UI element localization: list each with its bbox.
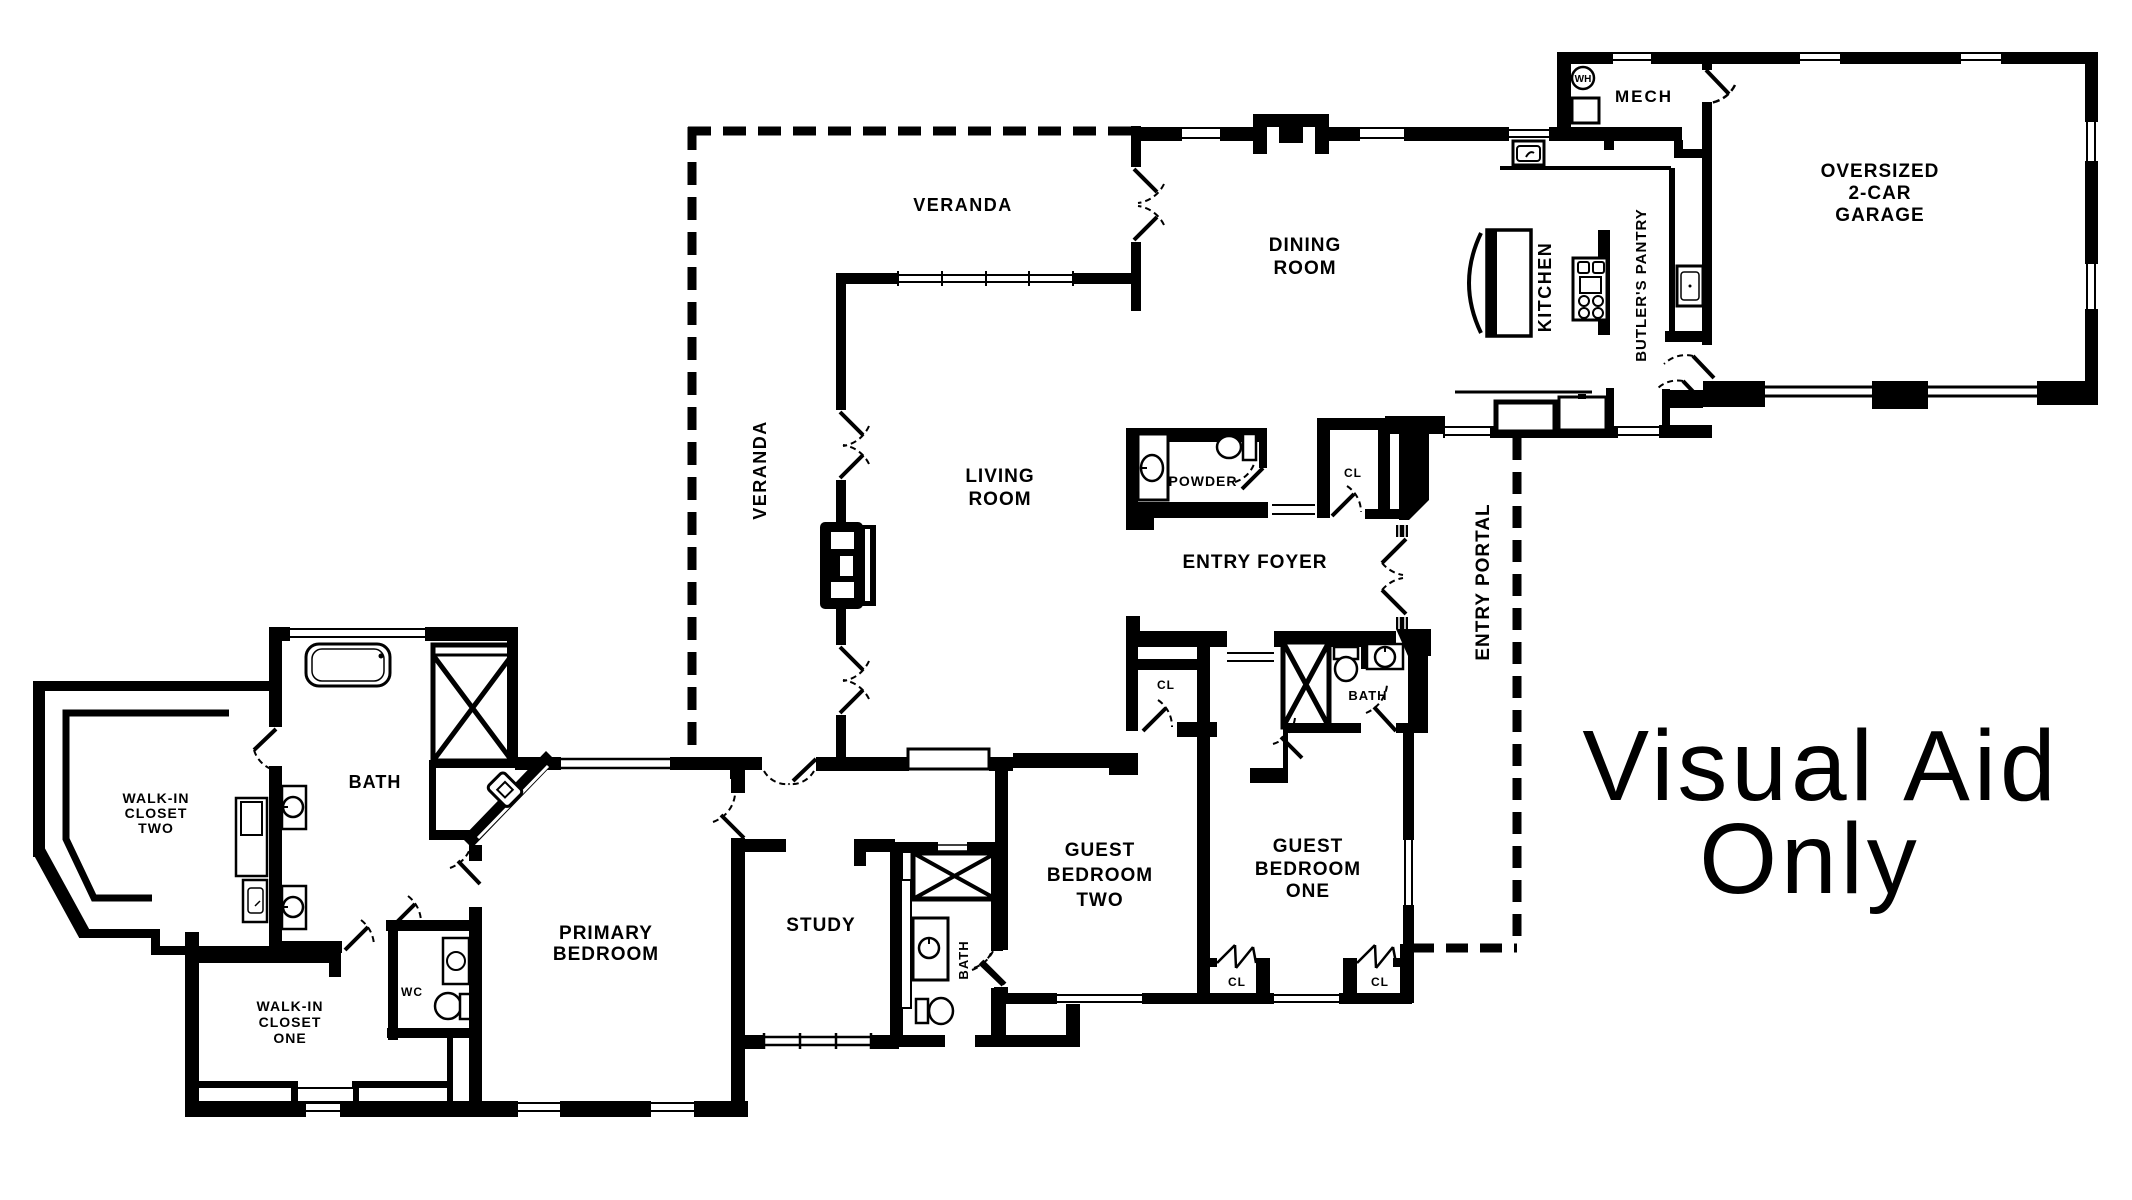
svg-text:BEDROOM: BEDROOM	[1047, 865, 1153, 886]
svg-text:WH: WH	[1575, 74, 1592, 85]
svg-text:ROOM: ROOM	[1273, 258, 1336, 279]
svg-text:STUDY: STUDY	[786, 915, 855, 936]
svg-text:ENTRY PORTAL: ENTRY PORTAL	[1473, 503, 1494, 660]
svg-text:BATH: BATH	[349, 772, 402, 792]
svg-text:2-CAR: 2-CAR	[1848, 183, 1911, 204]
svg-text:TWO: TWO	[1076, 890, 1123, 911]
svg-text:WC: WC	[401, 985, 423, 999]
svg-text:DINING: DINING	[1269, 235, 1342, 256]
svg-text:MECH: MECH	[1615, 87, 1673, 106]
svg-text:WALK-IN: WALK-IN	[123, 790, 190, 806]
svg-text:BEDROOM: BEDROOM	[1255, 859, 1361, 880]
svg-text:GUEST: GUEST	[1065, 840, 1135, 861]
svg-text:LIVING: LIVING	[965, 466, 1034, 487]
svg-text:ONE: ONE	[273, 1030, 306, 1046]
svg-text:ROOM: ROOM	[968, 489, 1031, 510]
svg-text:GUEST: GUEST	[1273, 836, 1343, 857]
svg-text:CL: CL	[1228, 975, 1246, 989]
svg-text:PRIMARY: PRIMARY	[559, 923, 653, 944]
svg-text:WALK-IN: WALK-IN	[257, 998, 324, 1014]
svg-text:CL: CL	[1157, 678, 1175, 692]
svg-text:VERANDA: VERANDA	[750, 420, 770, 520]
svg-text:POWDER: POWDER	[1169, 473, 1238, 489]
svg-text:ONE: ONE	[1286, 881, 1330, 902]
svg-text:CL: CL	[1371, 975, 1389, 989]
svg-text:Only: Only	[1699, 803, 1921, 915]
svg-text:VERANDA: VERANDA	[913, 195, 1013, 215]
svg-text:ENTRY FOYER: ENTRY FOYER	[1182, 552, 1327, 573]
svg-text:BEDROOM: BEDROOM	[553, 944, 659, 965]
svg-text:BATH: BATH	[956, 940, 971, 979]
svg-text:CLOSET: CLOSET	[125, 805, 188, 821]
svg-text:CL: CL	[1344, 466, 1362, 480]
svg-text:OVERSIZED: OVERSIZED	[1821, 161, 1940, 182]
svg-text:BUTLER'S PANTRY: BUTLER'S PANTRY	[1633, 208, 1650, 362]
svg-text:KITCHEN: KITCHEN	[1535, 242, 1555, 333]
svg-text:CLOSET: CLOSET	[259, 1014, 322, 1030]
svg-text:TWO: TWO	[138, 820, 174, 836]
svg-text:GARAGE: GARAGE	[1835, 205, 1924, 226]
